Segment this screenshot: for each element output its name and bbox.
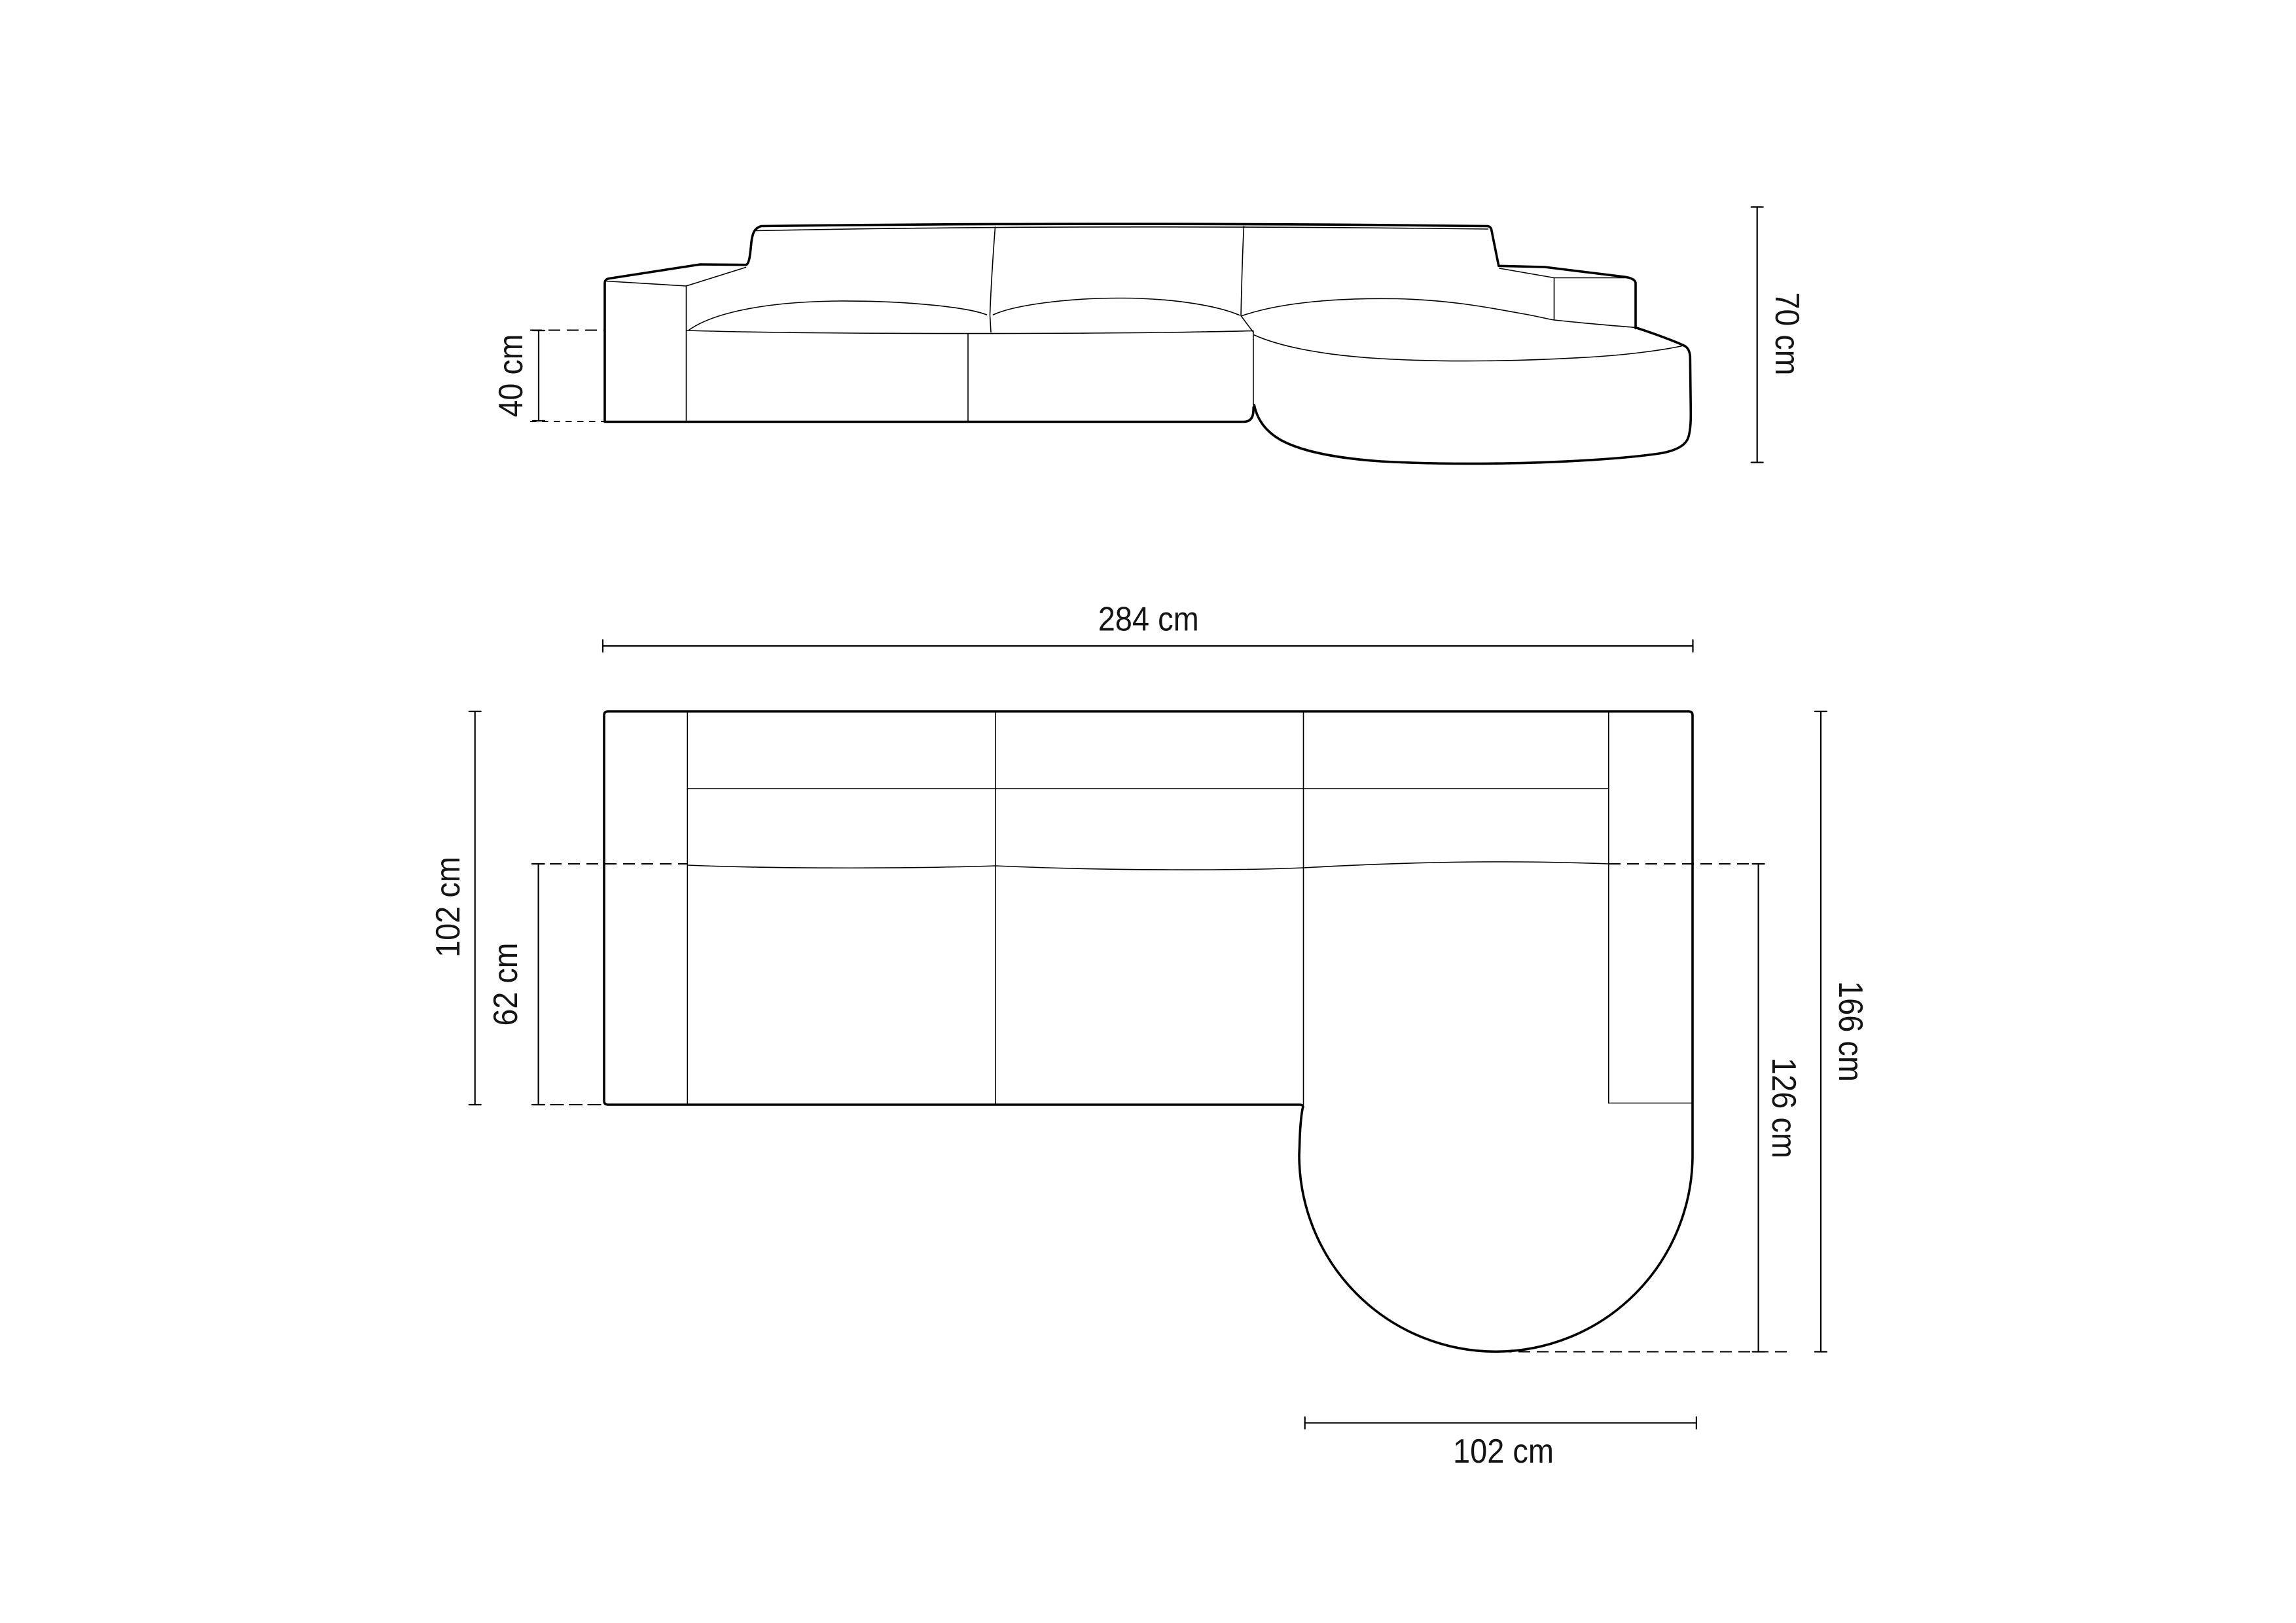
svg-text:166 cm: 166 cm <box>1831 981 1869 1082</box>
svg-text:40 cm: 40 cm <box>492 334 530 418</box>
svg-text:126 cm: 126 cm <box>1765 1058 1803 1158</box>
svg-text:102 cm: 102 cm <box>1453 1433 1554 1471</box>
svg-text:284 cm: 284 cm <box>1098 600 1199 638</box>
svg-text:62 cm: 62 cm <box>487 943 525 1026</box>
svg-text:102 cm: 102 cm <box>429 857 467 957</box>
svg-text:70 cm: 70 cm <box>1768 293 1806 376</box>
